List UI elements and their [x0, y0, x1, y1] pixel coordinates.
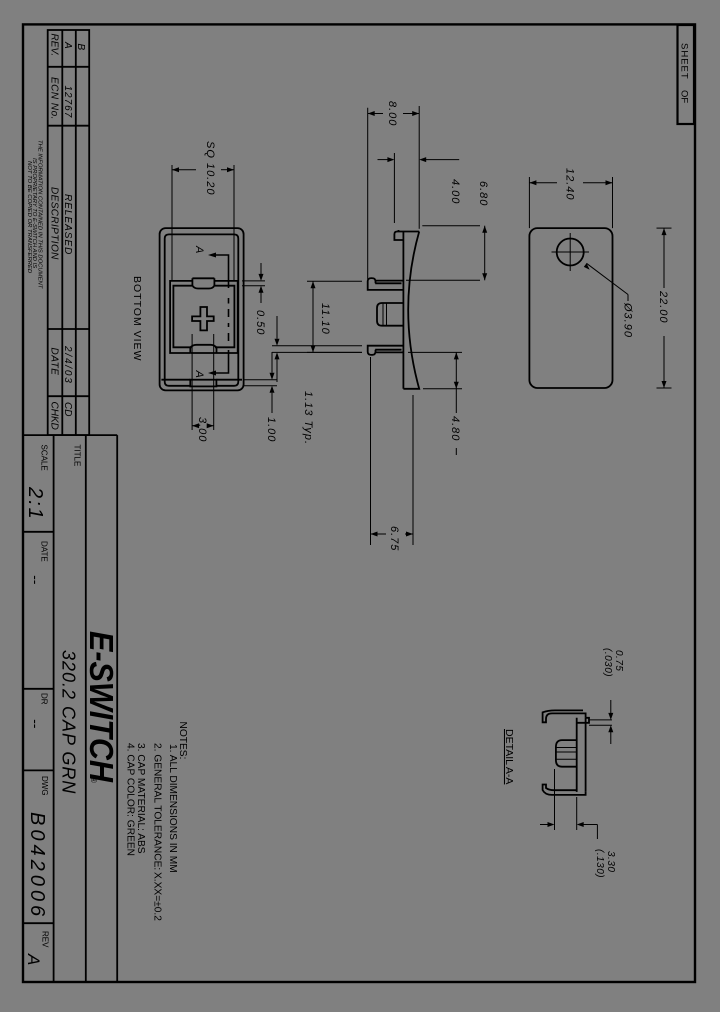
svg-text:SQ 10.20: SQ 10.20 — [204, 141, 216, 195]
svg-text:12767: 12767 — [62, 86, 73, 119]
svg-text:NOT TO BE COPIED OR TRANSFERRE: NOT TO BE COPIED OR TRANSFERRED — [26, 161, 32, 274]
svg-text:4. CAP COLOR: GREEN: 4. CAP COLOR: GREEN — [125, 743, 136, 856]
svg-text:DATE: DATE — [49, 348, 60, 376]
svg-text:0.75: 0.75 — [613, 650, 624, 671]
svg-text:--: -- — [28, 719, 44, 729]
svg-text:TITLE: TITLE — [73, 445, 82, 467]
svg-text:DETAIL A-A: DETAIL A-A — [503, 729, 515, 784]
svg-text:4.80: 4.80 — [449, 416, 461, 441]
svg-text:8.00: 8.00 — [386, 101, 398, 126]
svg-text:6.80: 6.80 — [477, 181, 489, 206]
svg-text:CD: CD — [62, 402, 73, 416]
svg-text:DATE: DATE — [40, 541, 49, 562]
svg-text:0.50: 0.50 — [254, 310, 266, 335]
svg-text:RELEASED: RELEASED — [62, 194, 73, 255]
svg-text:(.030): (.030) — [602, 648, 613, 677]
svg-text:REV.: REV. — [49, 34, 60, 57]
svg-text:2/4/03: 2/4/03 — [62, 345, 73, 385]
svg-text:SHEET: SHEET — [679, 43, 690, 80]
svg-text:2:1: 2:1 — [24, 486, 46, 521]
svg-text:1.00: 1.00 — [265, 417, 277, 442]
svg-text:11.10: 11.10 — [319, 303, 331, 335]
svg-text:--: -- — [28, 575, 44, 585]
svg-text:320.2 CAP GRN: 320.2 CAP GRN — [59, 650, 79, 794]
svg-text:A: A — [62, 41, 73, 49]
svg-text:E-SWITCH: E-SWITCH — [83, 631, 120, 783]
svg-text:OF: OF — [679, 90, 690, 103]
svg-text:®: ® — [89, 777, 98, 783]
svg-text:A: A — [193, 245, 205, 253]
svg-text:1.13 Typ.: 1.13 Typ. — [302, 391, 314, 445]
svg-text:3. CAP MATERIAL: ABS: 3. CAP MATERIAL: ABS — [135, 743, 146, 854]
svg-text:B042006: B042006 — [26, 812, 48, 920]
svg-text:1. ALL DIMENSIONS IN MM: 1. ALL DIMENSIONS IN MM — [167, 744, 178, 873]
svg-text:(.130): (.130) — [594, 849, 605, 878]
svg-text:3.30: 3.30 — [605, 851, 616, 872]
svg-text:B: B — [75, 44, 86, 51]
svg-text:12.40: 12.40 — [564, 168, 576, 201]
svg-text:SCALE: SCALE — [40, 445, 49, 471]
svg-text:X.XX=±0.2: X.XX=±0.2 — [152, 872, 163, 921]
svg-text:2. GENERAL TOLERANCE:: 2. GENERAL TOLERANCE: — [152, 743, 163, 870]
svg-text:REV: REV — [41, 931, 50, 948]
svg-text:3.00: 3.00 — [196, 417, 208, 442]
svg-text:CHKD: CHKD — [49, 402, 60, 430]
svg-text:A: A — [24, 953, 43, 965]
svg-text:DR: DR — [40, 693, 49, 705]
svg-text:BOTTOM VIEW: BOTTOM VIEW — [131, 276, 143, 361]
svg-text:Ø3.90: Ø3.90 — [622, 302, 634, 338]
svg-text:DESCRIPTION: DESCRIPTION — [49, 187, 60, 260]
svg-text:ECN No.: ECN No. — [49, 77, 60, 120]
svg-text:A: A — [193, 370, 205, 378]
svg-text:4.00: 4.00 — [449, 179, 461, 204]
svg-text:22.00: 22.00 — [657, 290, 669, 324]
svg-text:6.75: 6.75 — [388, 526, 400, 551]
svg-text:DWG: DWG — [40, 776, 49, 796]
